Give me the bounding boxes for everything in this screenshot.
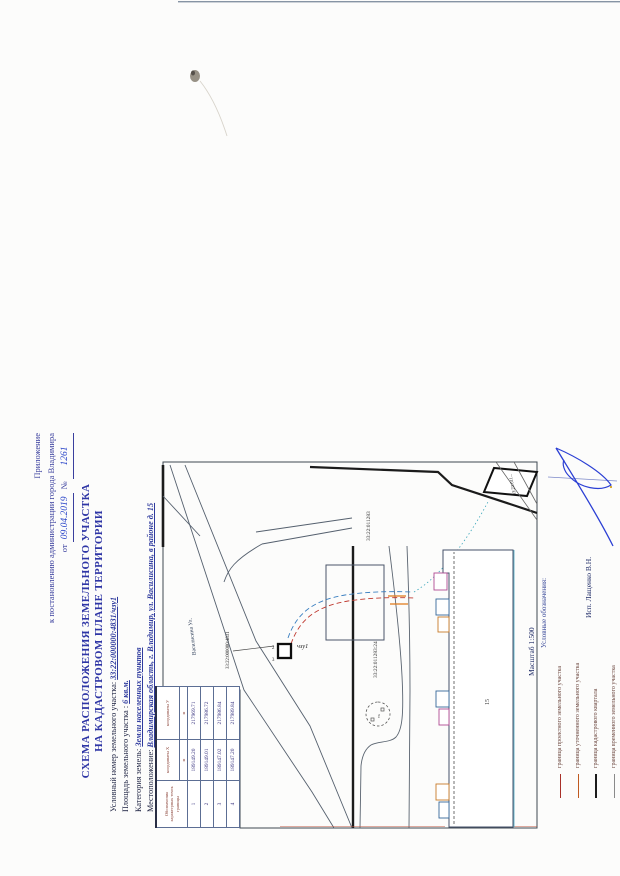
well-label: тк	[376, 713, 381, 718]
field-label: Категория земель:	[134, 747, 143, 812]
appendix-line2: к постановлению администрации города Вла…	[45, 433, 59, 623]
table-cell: 217986.72	[201, 687, 214, 740]
table-unit-y: м	[180, 687, 188, 740]
coordinates-table-body: Обозначения характерных точек границы ко…	[156, 687, 240, 828]
table-cell: 189149.01	[201, 740, 214, 781]
table-cell: 217969.71	[188, 687, 201, 740]
paper-edge-line	[178, 1, 620, 2]
field-lines: Условный номер земельного участка: 33:22…	[108, 432, 158, 812]
appendix-number-sign: №	[59, 481, 69, 489]
road-band	[360, 546, 410, 828]
signature	[548, 448, 617, 546]
table-cell: 189147.02	[214, 740, 227, 781]
legend-line-sample	[560, 774, 561, 798]
legend-item-label: граница временного земельного участка	[611, 665, 617, 768]
table-header-x: координаты X	[156, 740, 180, 781]
coordinates-table: Обозначения характерных точек границы ко…	[155, 686, 240, 828]
building-15	[434, 550, 514, 827]
title-line2: НА КАДАСТРОВОМ ПЛАНЕ ТЕРРИТОРИИ	[93, 481, 106, 781]
table-cell: 4	[227, 781, 240, 828]
table-header-y: координаты У	[156, 687, 180, 740]
table-cell: 3	[214, 781, 227, 828]
table-unit-x: м	[180, 740, 188, 781]
subject-parcel-rect	[278, 644, 291, 658]
table-cell: 217989.84	[227, 687, 240, 740]
point-3-label: 3	[272, 658, 275, 663]
appendix-line3: от 09.04.2019 № 1261	[58, 433, 74, 623]
table-row: 3189147.02217986.84	[214, 687, 227, 828]
point-2-label: 2	[272, 646, 275, 651]
field-value: 6 кв.м.	[121, 680, 130, 704]
well-symbol: тк	[366, 702, 390, 726]
legend-item-label: граница кадастрового квартала	[593, 689, 599, 768]
square-building	[326, 565, 384, 640]
legend-item: граница проектного земельного участка	[551, 578, 569, 798]
table-row: 2189149.01217986.72	[201, 687, 214, 828]
road-parcel-label: 33:22:011283:24	[373, 641, 379, 678]
executor-label: Исп. Лащенко В.Н.	[584, 557, 593, 618]
house-number-label: 15	[485, 699, 491, 705]
legend-line-sample	[614, 774, 615, 798]
quarter-label: 33:22:011283	[366, 511, 372, 541]
field-label: Условный номер земельного участка:	[109, 680, 118, 812]
table-cell: 189147.20	[227, 740, 240, 781]
field-label: Местоположение:	[146, 748, 155, 812]
leader-parcel-label: 33:22:000000:4831	[226, 631, 231, 669]
legend-line-sample	[578, 774, 579, 798]
leader-line	[233, 646, 274, 651]
appendix-block: Приложение к постановлению администрации…	[31, 433, 74, 623]
table-row: 1189149.20217969.71	[188, 687, 201, 828]
legend-header: Условные обозначения:	[540, 578, 548, 648]
street-label: Василисина Ул.	[187, 617, 198, 655]
legend-item-label: граница проектного земельного участка	[557, 666, 563, 768]
document-sheet: 3 2 чзу1 15 тк	[0, 0, 620, 876]
appendix-date-prefix: от	[59, 544, 69, 552]
legend-item: граница временного земельного участка	[605, 578, 620, 798]
field-line: Категория земель: Земли населенных пункт…	[133, 432, 145, 812]
scan-speck	[190, 70, 227, 136]
document-title: СХЕМА РАСПОЛОЖЕНИЯ ЗЕМЕЛЬНОГО УЧАСТКА НА…	[80, 481, 105, 781]
legend-line-sample	[595, 774, 597, 798]
table-cell: 217986.84	[214, 687, 227, 740]
field-value: Земли населенных пунктов	[134, 648, 143, 747]
table-cell: 1	[188, 781, 201, 828]
field-line: Условный номер земельного участка: 33:22…	[108, 432, 120, 812]
scanned-document: 3 2 чзу1 15 тк	[0, 0, 620, 876]
appendix-line1: Приложение	[31, 433, 45, 623]
field-value: Владимирская область, г. Владимир, ул. В…	[146, 503, 155, 748]
field-label: Площадь земельного участка :	[121, 704, 130, 812]
scale-label: Масштаб 1:500	[527, 606, 536, 676]
table-cell: 189149.20	[188, 740, 201, 781]
title-line1: СХЕМА РАСПОЛОЖЕНИЯ ЗЕМЕЛЬНОГО УЧАСТКА	[80, 481, 93, 781]
table-row: 4189147.20217989.84	[227, 687, 240, 828]
appendix-number-handwritten: 1261	[59, 433, 74, 479]
subject-parcel-label: чзу1	[297, 643, 308, 650]
table-cell: 2	[201, 781, 214, 828]
table-header-points: Обозначения характерных точек границы	[156, 781, 188, 828]
legend-item-label: граница уточненного земельного участка	[575, 663, 581, 768]
field-line: Площадь земельного участка : 6 кв.м.	[120, 432, 132, 812]
field-value: 33:22:000000:4831/чзу1	[109, 597, 118, 680]
appendix-date-handwritten: 09.04.2019	[59, 494, 74, 543]
